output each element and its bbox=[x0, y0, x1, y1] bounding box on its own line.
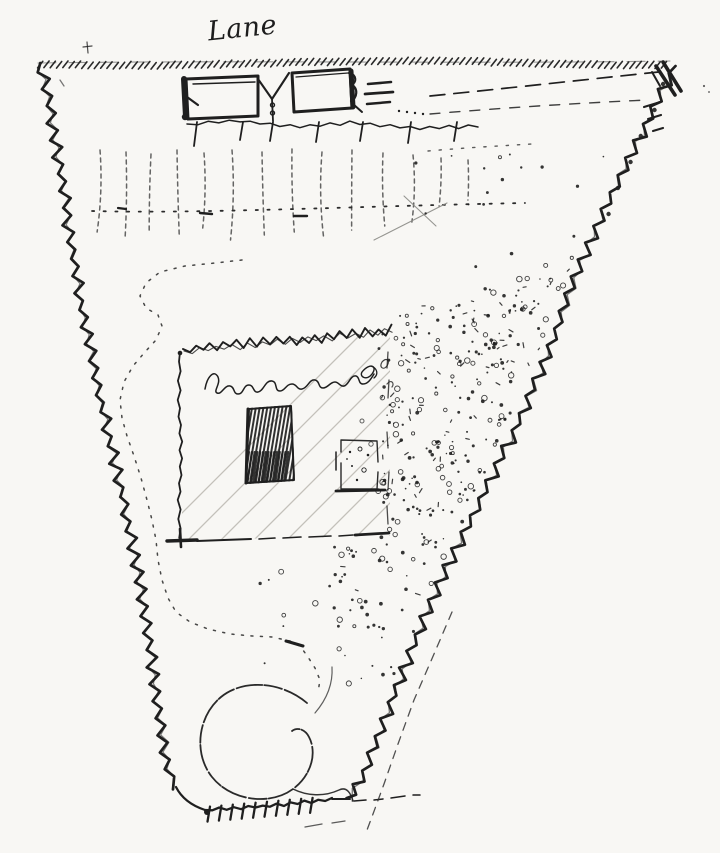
sketch-page: Lane bbox=[0, 0, 720, 853]
sketch-plan-drawing: Lane bbox=[0, 0, 720, 853]
paper-background bbox=[0, 0, 720, 853]
